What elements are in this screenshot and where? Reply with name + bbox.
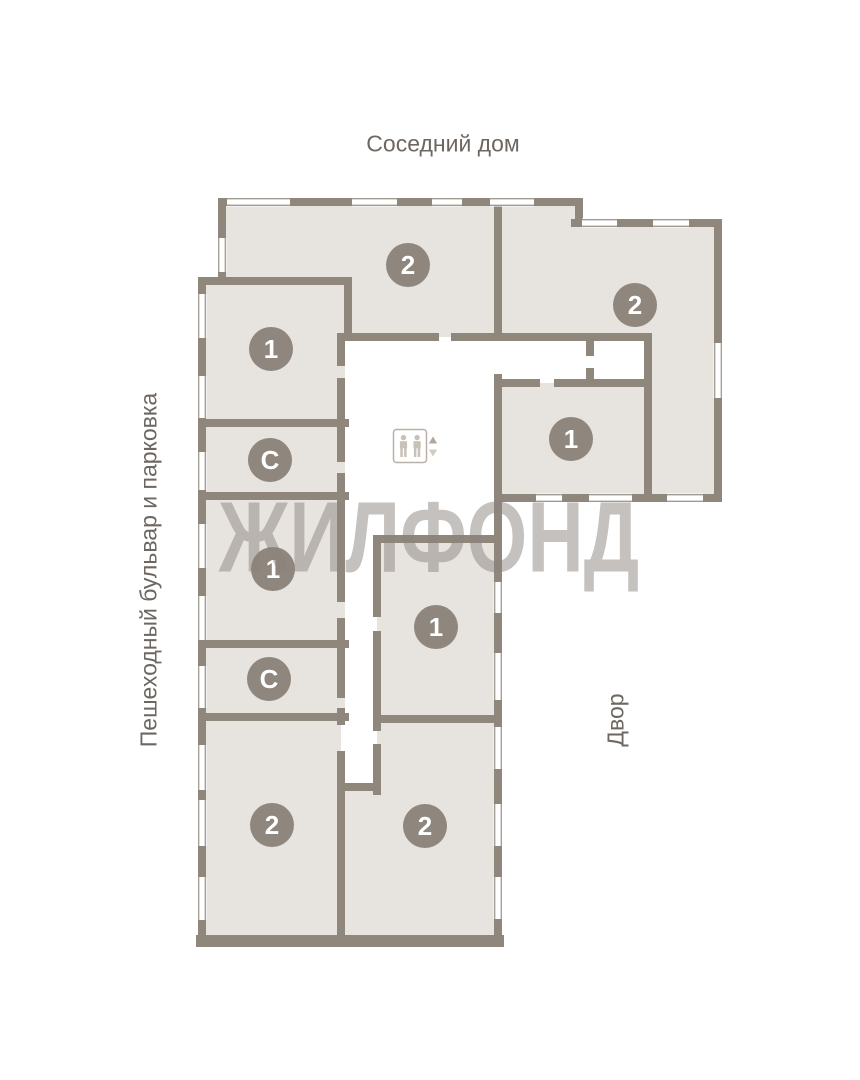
- floor-plan-page: 2 2 1 1 С 1 1 С 2 2 Соседний дом Пешеход…: [0, 0, 860, 1080]
- unit-badge-bottom-middle-2[interactable]: 2: [403, 804, 447, 848]
- arrow-up-icon: [429, 437, 437, 444]
- unit-badge-middle-1[interactable]: 1: [414, 605, 458, 649]
- elevator-people-icon: [394, 430, 438, 463]
- unit-badge-bottom-left-2[interactable]: 2: [250, 803, 294, 847]
- unit-badge-left-storage-upper[interactable]: С: [248, 438, 292, 482]
- boulevard-parking-label: Пешеходный бульвар и парковка: [136, 393, 161, 747]
- neighbor-house-label: Соседний дом: [366, 131, 519, 156]
- unit-badge-left-1-upper[interactable]: 1: [249, 327, 293, 371]
- floor-plan-drawing: [0, 0, 860, 1080]
- courtyard-label: Двор: [603, 693, 628, 746]
- unit-badge-left-storage-lower[interactable]: С: [247, 657, 291, 701]
- unit-badge-right-2[interactable]: 2: [613, 283, 657, 327]
- unit-badge-left-1-lower[interactable]: 1: [251, 547, 295, 591]
- unit-badge-right-1[interactable]: 1: [549, 417, 593, 461]
- arrow-down-icon: [429, 450, 437, 457]
- unit-badge-top-2[interactable]: 2: [386, 243, 430, 287]
